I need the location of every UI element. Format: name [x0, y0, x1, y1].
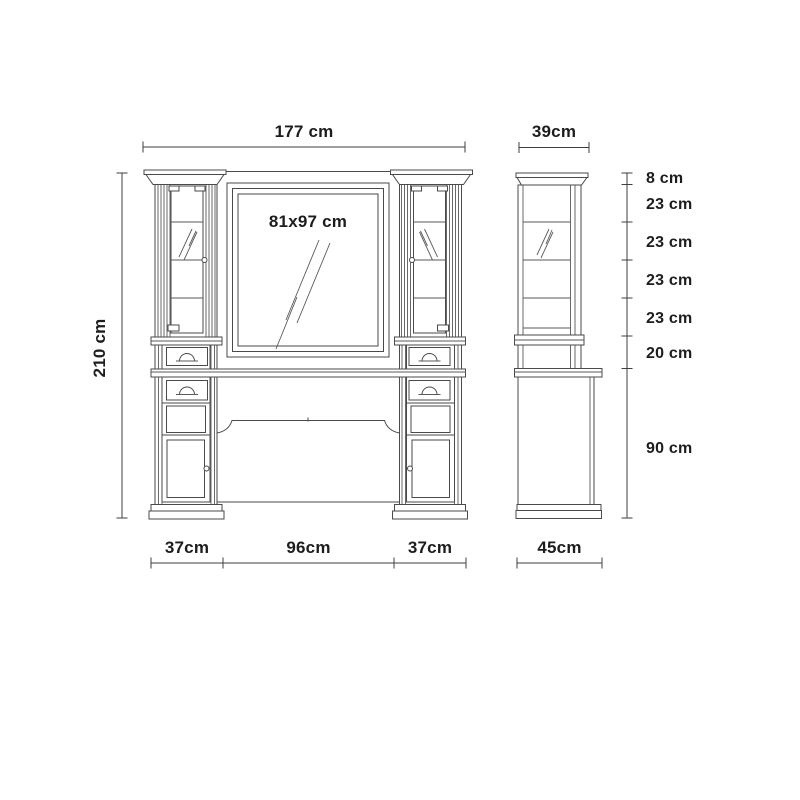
- mirror: 81x97 cm: [227, 183, 389, 357]
- side-desk-top: [515, 369, 603, 378]
- dim-front-height: 210 cm: [90, 173, 127, 518]
- side-top-width-label: 39cm: [532, 122, 576, 141]
- bottom-segment-label-middle: 96cm: [286, 538, 330, 557]
- desk-top: [151, 369, 466, 377]
- side-crown-top: [516, 173, 588, 178]
- left-column: [144, 170, 226, 519]
- side-crown-base: [517, 178, 587, 186]
- side-view: [515, 173, 603, 519]
- desk-apron: [217, 421, 400, 434]
- segment-label-8cm: 8 cm: [646, 170, 683, 187]
- furniture-dimension-diagram: 81x97 cm 177 cm: [0, 0, 800, 800]
- segment-label-23cm-1: 23 cm: [646, 196, 692, 213]
- right-column: [391, 170, 473, 519]
- front-width-label: 177 cm: [275, 122, 334, 141]
- bottom-segment-label-left: 37cm: [165, 538, 209, 557]
- segment-label-23cm-4: 23 cm: [646, 310, 692, 327]
- segment-label-23cm-2: 23 cm: [646, 234, 692, 251]
- dim-side-height-segments: 8 cm 23 cm 23 cm 23 cm 23 cm 20 cm 90 cm: [622, 170, 692, 518]
- bottom-segment-label-right: 37cm: [408, 538, 452, 557]
- side-lower-body: [518, 377, 594, 505]
- front-view: 81x97 cm: [144, 170, 473, 519]
- segment-label-20cm: 20 cm: [646, 345, 692, 362]
- dim-side-bottom-width: 45cm: [517, 538, 602, 568]
- dim-front-width: 177 cm: [143, 122, 465, 152]
- dim-front-bottom: 37cm 96cm 37cm: [151, 538, 466, 568]
- dim-side-top-width: 39cm: [519, 122, 589, 153]
- mirror-size-label: 81x97 cm: [269, 212, 347, 231]
- diagram-canvas: 81x97 cm 177 cm: [0, 0, 800, 800]
- side-plinth-base: [516, 511, 602, 519]
- side-plinth-step: [517, 505, 601, 511]
- mirror-frame-outer: [227, 183, 389, 357]
- segment-label-90cm: 90 cm: [646, 440, 692, 457]
- front-height-label: 210 cm: [90, 319, 109, 378]
- side-bottom-width-label: 45cm: [537, 538, 581, 557]
- segment-label-23cm-3: 23 cm: [646, 272, 692, 289]
